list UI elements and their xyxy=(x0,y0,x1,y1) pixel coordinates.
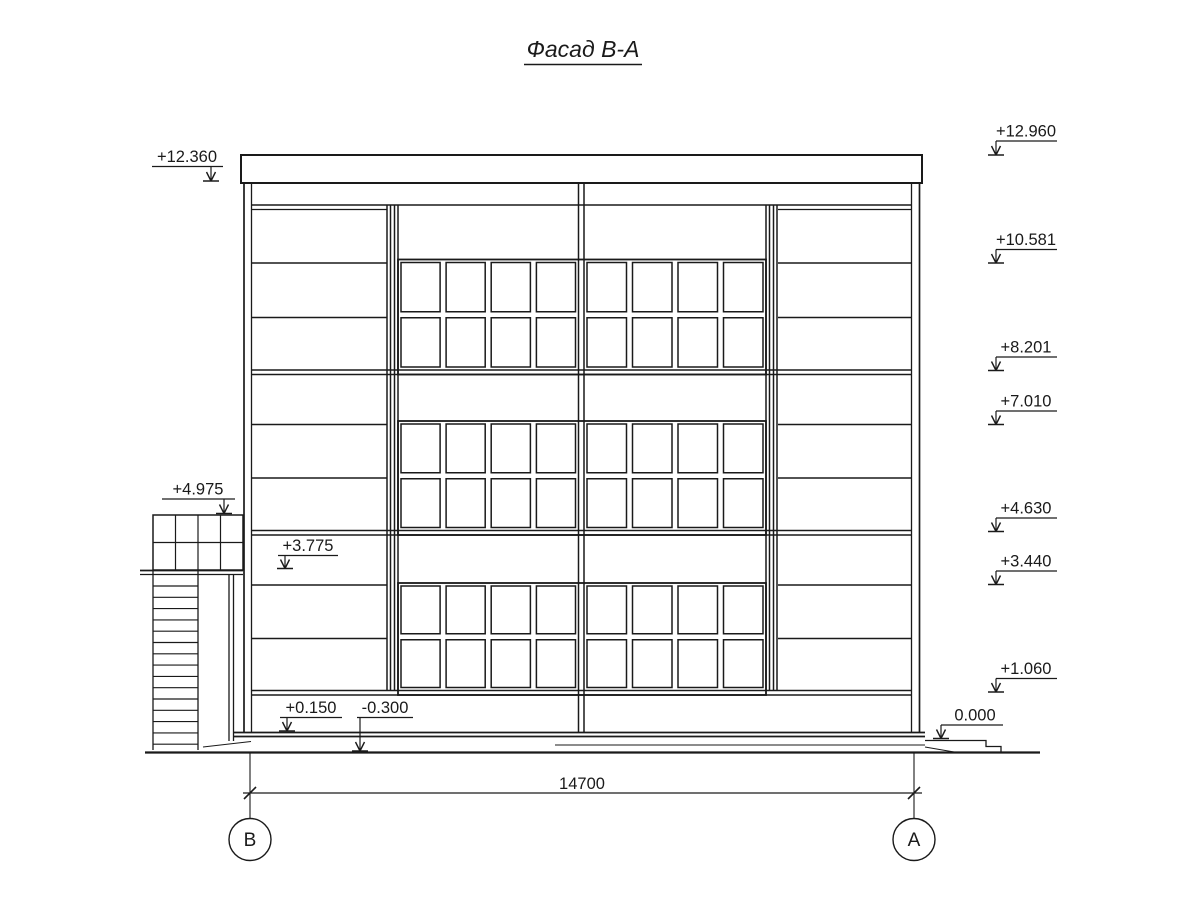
elevation-value: +3.440 xyxy=(1001,553,1052,571)
elevation-value: +8.201 xyxy=(1001,339,1052,357)
dimension-value: 14700 xyxy=(559,775,605,793)
elevation-value: 0.000 xyxy=(954,707,995,725)
elevation-mark-left-minus0300: -0.300 xyxy=(352,699,413,751)
elevation-value: +7.010 xyxy=(1001,393,1052,411)
elevation-value: +4.975 xyxy=(173,481,224,499)
elevation-mark-right-10581: +10.581 xyxy=(988,231,1057,263)
elevation-mark-right-1060: +1.060 xyxy=(988,660,1057,692)
dimension-line: 14700 xyxy=(243,775,922,799)
elevation-mark-left-0150: +0.150 xyxy=(279,699,342,731)
elevation-mark-left-3775: +3.775 xyxy=(277,537,338,569)
elevation-mark-right-0000: 0.000 xyxy=(933,707,1003,739)
axis-b: В xyxy=(229,753,271,861)
axis-a: А xyxy=(893,753,935,861)
elevation-value: +10.581 xyxy=(996,231,1056,249)
entrance-steps-right xyxy=(925,741,1001,753)
elevation-mark-right-8201: +8.201 xyxy=(988,339,1057,371)
elevation-value: +0.150 xyxy=(286,699,337,717)
axis-label-b: В xyxy=(244,830,257,851)
stair-tower xyxy=(140,515,243,750)
elevation-mark-right-3440: +3.440 xyxy=(988,553,1057,585)
entrance-ramp xyxy=(203,742,251,748)
elevation-value: +4.630 xyxy=(1001,500,1052,518)
stair-steps xyxy=(153,586,198,744)
facade-elevation-drawing: Фасад В-А xyxy=(0,0,1200,900)
elevation-value: +12.960 xyxy=(996,123,1056,141)
elevation-mark-right-7010: +7.010 xyxy=(988,393,1057,425)
drawing-title: Фасад В-А xyxy=(524,36,642,65)
elevation-value: +12.360 xyxy=(157,148,217,166)
elevation-mark-right-12960: +12.960 xyxy=(988,123,1057,156)
facade-elevation-sheet: Фасад В-А xyxy=(0,0,1200,900)
axis-label-a: А xyxy=(908,830,921,851)
elevation-mark-left-4975: +4.975 xyxy=(162,481,235,514)
elevation-value: +1.060 xyxy=(1001,660,1052,678)
drawing-title-text: Фасад В-А xyxy=(527,36,640,62)
elevation-value: -0.300 xyxy=(362,699,409,717)
elevation-mark-left-12360: +12.360 xyxy=(152,148,223,181)
facade-walls xyxy=(233,183,925,745)
parapet xyxy=(241,155,922,183)
elevation-value: +3.775 xyxy=(283,537,334,555)
elevation-mark-right-4630: +4.630 xyxy=(988,500,1057,532)
